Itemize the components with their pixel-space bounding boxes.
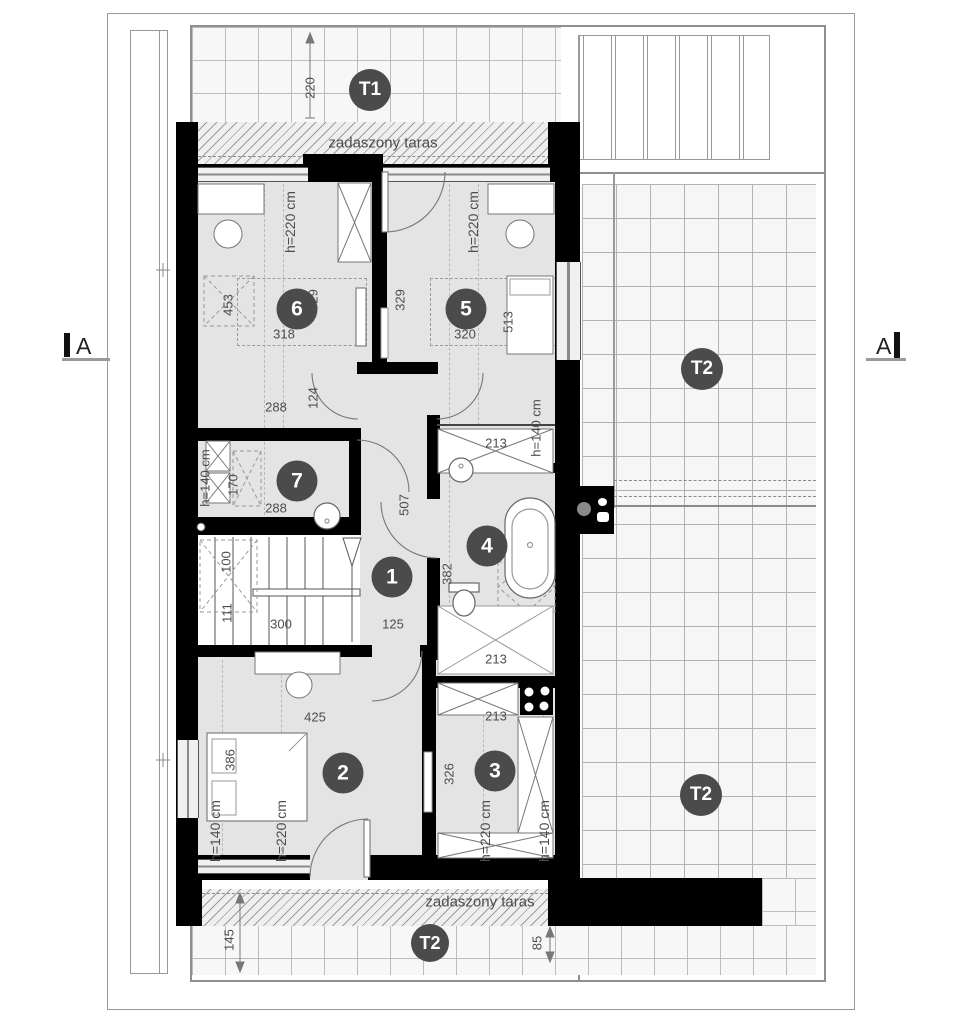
dim-wardrobe-width: 213 bbox=[485, 437, 507, 450]
sink-bath bbox=[449, 458, 473, 482]
dim-room2-h140: h=140 cm bbox=[208, 800, 222, 862]
dim-stairs-upper: 100 bbox=[220, 551, 233, 573]
door-wardrobe-corridor bbox=[437, 373, 483, 419]
covered-terrace-label-top: zadaszony taras bbox=[328, 136, 437, 151]
wardrobe-room6 bbox=[338, 183, 371, 262]
floor-plan-canvas: zadaszony taraszadaszony taras220h=220 c… bbox=[0, 0, 968, 1024]
bathtub bbox=[505, 498, 555, 598]
section-marker-left: A bbox=[76, 333, 91, 360]
dim-wardrobe-height: h=140 cm bbox=[530, 399, 543, 456]
badge-terrace-t2-bottom: T2 bbox=[411, 924, 449, 962]
badge-room-4: 4 bbox=[467, 526, 508, 567]
badge-room-7: 7 bbox=[277, 461, 318, 502]
flue-box-room3 bbox=[520, 683, 553, 715]
dim-hall-width: 125 bbox=[382, 618, 404, 631]
badge-terrace-t2-upper: T2 bbox=[681, 348, 723, 390]
section-marker-bar-left bbox=[64, 333, 70, 357]
dim-bath-width: 213 bbox=[485, 653, 507, 666]
dim-room6-height: h=220 cm bbox=[283, 191, 297, 253]
dim-room6-skylight: 453 bbox=[222, 294, 235, 316]
dim-bottom-offset: 85 bbox=[531, 936, 544, 950]
section-marker-underline-right bbox=[866, 358, 906, 361]
covered-terrace-label-bottom: zadaszony taras bbox=[425, 895, 534, 910]
badge-room-5: 5 bbox=[446, 289, 487, 330]
dim-bottom-terrace: 145 bbox=[223, 929, 236, 951]
radiator-room5 bbox=[381, 308, 388, 358]
dim-stairs-lower: 111 bbox=[221, 603, 234, 623]
dim-room6-width: 318 bbox=[273, 328, 295, 341]
dim-room3-h140: h=140 cm bbox=[537, 800, 551, 862]
door-room2 bbox=[372, 651, 422, 701]
badge-room-3: 3 bbox=[475, 751, 516, 792]
chair-room5 bbox=[506, 220, 534, 248]
survey-tick-lower bbox=[156, 753, 170, 767]
section-marker-underline-left bbox=[62, 358, 110, 361]
section-marker-right: A bbox=[876, 333, 891, 360]
dimline-85 bbox=[546, 927, 554, 962]
door-room5-terrace bbox=[382, 172, 445, 232]
desk-room5 bbox=[488, 184, 554, 214]
downpipe-room7 bbox=[197, 523, 205, 531]
desk-room6 bbox=[198, 184, 264, 214]
dim-room3-h220: h=220 cm bbox=[478, 800, 492, 862]
dim-hall-nook: 124 bbox=[307, 387, 320, 409]
survey-tick-upper bbox=[156, 263, 170, 277]
badge-terrace-t2-lower: T2 bbox=[680, 774, 722, 816]
badge-room-2: 2 bbox=[323, 753, 364, 794]
dim-hall-length: 507 bbox=[398, 494, 411, 516]
dim-room2-width: 425 bbox=[304, 711, 326, 724]
dim-room3-width: 213 bbox=[485, 710, 507, 723]
dim-room7-appliance: 170 bbox=[227, 474, 240, 496]
chair-room2 bbox=[286, 672, 312, 698]
dim-room3-depth: 326 bbox=[443, 763, 456, 785]
dim-room7-width: 288 bbox=[265, 502, 287, 515]
dim-room5-height: h=220 cm bbox=[466, 191, 480, 253]
dim-room5-bed: 513 bbox=[502, 311, 515, 333]
dim-room6-bottom: 288 bbox=[265, 401, 287, 414]
sink-room7 bbox=[314, 503, 340, 529]
section-marker-bar-right bbox=[894, 332, 900, 358]
dim-room7-height: h=140 cm bbox=[199, 449, 212, 506]
badge-room-1: 1 bbox=[372, 557, 413, 598]
dim-room2-h220: h=220 cm bbox=[274, 800, 288, 862]
badge-terrace-t1: T1 bbox=[349, 69, 391, 111]
radiator-room2 bbox=[424, 752, 432, 812]
dim-bath-depth: 382 bbox=[441, 563, 454, 585]
door-leaf-room6-closet bbox=[356, 288, 366, 346]
dimline-145 bbox=[236, 893, 244, 972]
dim-room5-depth: 329 bbox=[394, 289, 407, 311]
dim-terrace-depth: 220 bbox=[304, 77, 317, 99]
furniture-layer bbox=[0, 0, 968, 1024]
dim-stairs-width: 300 bbox=[270, 618, 292, 631]
desk-room2 bbox=[255, 652, 340, 674]
door-room7 bbox=[357, 440, 409, 492]
dim-room2-bed: 386 bbox=[224, 749, 237, 771]
door-room2-terrace bbox=[310, 819, 370, 877]
badge-room-6: 6 bbox=[277, 289, 318, 330]
chair-room6 bbox=[214, 220, 242, 248]
dimline-220 bbox=[305, 33, 315, 118]
